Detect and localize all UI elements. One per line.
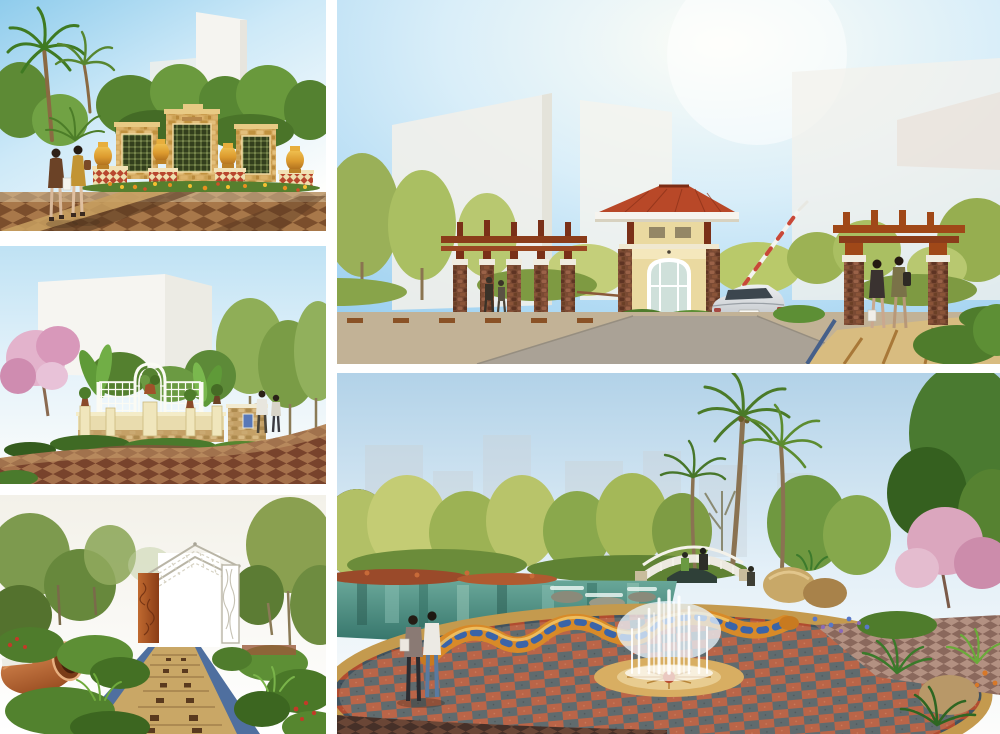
gate-right-column	[222, 565, 239, 643]
fountain-plaza-scene: Lakeside fountain plaza	[337, 373, 1000, 734]
art-gate-scene: Stone path to sculptural garden gate	[0, 495, 326, 734]
tree-line	[337, 473, 891, 583]
roadway	[337, 305, 1000, 364]
panel-trellis-garden: Garden corner with white trellis arch	[0, 246, 326, 484]
panel-screen-walls: Plaza with decorative stone screen walls	[0, 0, 326, 231]
trellis-garden-scene: Garden corner with white trellis arch	[0, 246, 326, 484]
screen-walls-scene: Plaza with decorative stone screen walls	[0, 0, 326, 231]
panel-fountain-plaza: Lakeside fountain plaza	[337, 373, 1000, 734]
panel-entrance-gate: Community entrance with guard house	[337, 0, 1000, 364]
panel-art-gate-path: Stone path to sculptural garden gate	[0, 495, 326, 734]
rendering-collage: Plaza with decorative stone screen walls	[0, 0, 1000, 734]
entrance-gate-scene: Community entrance with guard house	[337, 0, 1000, 364]
